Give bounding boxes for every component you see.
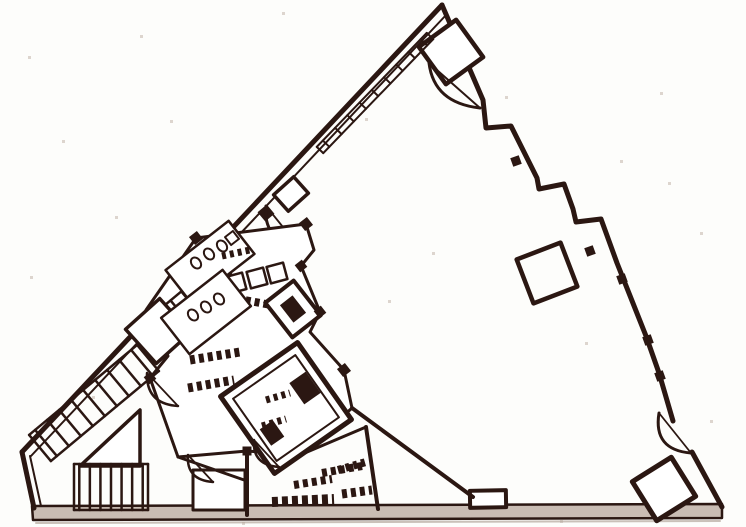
paper-speckle-4: [668, 182, 671, 185]
column-square: [517, 243, 578, 304]
paper-speckle-18: [620, 160, 623, 163]
service-wall: [366, 427, 378, 509]
wall-tooth-1: [510, 155, 522, 167]
basement-room: [193, 470, 245, 510]
floor-plan-drawing: [0, 0, 746, 527]
right-wall-stepped: [442, 5, 673, 421]
paper-speckle-19: [170, 120, 173, 123]
stairwell-band-lower-step-3: [71, 400, 93, 426]
stairwell-band-lower-step-4: [83, 390, 105, 416]
paper-speckle-8: [115, 216, 118, 219]
ramp-triangle: [80, 410, 140, 466]
left-corner-wall-outer: [22, 452, 34, 508]
paper-speckle-3: [505, 96, 508, 99]
service-label-2: [342, 490, 372, 494]
paper-speckle-9: [585, 342, 588, 345]
bottom-bump: [470, 490, 506, 508]
wall-junction-7: [243, 447, 252, 456]
paper-speckle-5: [700, 232, 703, 235]
paper-speckle-11: [660, 92, 663, 95]
paper-speckle-7: [30, 276, 33, 279]
paper-speckle-6: [62, 140, 65, 143]
stairwell-band-lower-step-7: [119, 360, 141, 386]
paper-speckle-0: [140, 35, 143, 38]
floor-plan-page: [0, 0, 746, 527]
paper-speckle-2: [365, 118, 368, 121]
wall-tooth-2: [584, 245, 596, 257]
paper-speckle-1: [282, 12, 285, 15]
baseline-shadow: [36, 521, 720, 523]
elevator-cab-3: [267, 263, 288, 284]
stairwell-band-lower-step-1: [47, 420, 69, 446]
elevator-cab-2: [247, 268, 268, 289]
label-row-4: [272, 499, 334, 502]
paper-speckle-17: [388, 300, 391, 303]
paper-speckle-10: [432, 252, 435, 255]
stairwell-band-lower-step-5: [95, 380, 117, 406]
wall-tooth-5: [654, 370, 666, 382]
stairwell-band-lower-step-0: [35, 430, 57, 456]
stairwell-band-lower-step-6: [107, 370, 129, 396]
label-row-5: [294, 479, 332, 485]
paper-speckle-13: [92, 396, 95, 399]
paper-speckle-12: [710, 420, 713, 423]
paper-speckle-16: [28, 56, 31, 59]
